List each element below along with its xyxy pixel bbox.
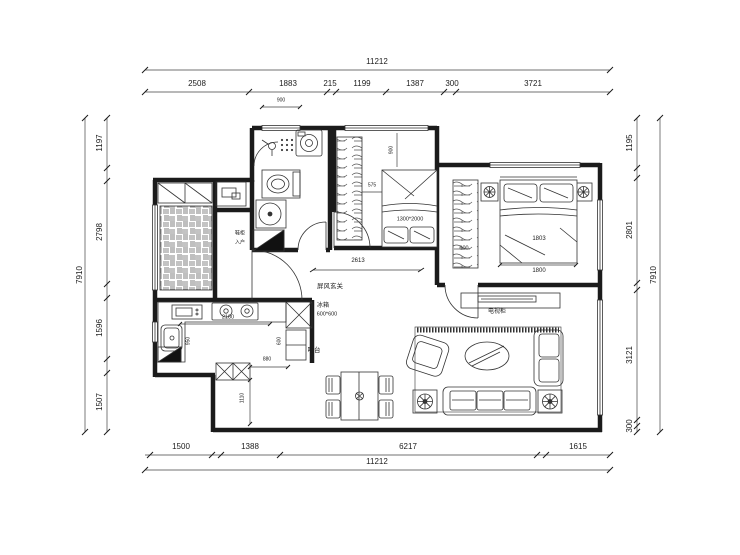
dim-fridge-depth: 600: [278, 337, 283, 345]
bathroom: [253, 130, 322, 251]
fridge-size-label: 600*600: [317, 312, 338, 318]
dim-top-total: 11212: [366, 58, 388, 66]
plant-table-left: [413, 390, 437, 413]
plant-table-right: [538, 390, 562, 413]
window-living-right: [598, 300, 603, 415]
entry-cabinet-black: [253, 230, 284, 251]
dim-bar-gap: 880: [263, 358, 271, 363]
dim-right-total: 7910: [650, 266, 658, 284]
dim-bed2-gap: 575: [368, 184, 376, 189]
dim-top-seg-4: 1387: [406, 80, 424, 88]
balcony-cabinet: [158, 183, 212, 203]
door-master: [445, 285, 478, 318]
master-bed-label: 1803: [532, 236, 545, 242]
wardrobe2: [337, 137, 362, 240]
tv-cabinet: [461, 293, 560, 308]
kitchen: [158, 302, 312, 380]
loveseat: [534, 330, 563, 386]
dim-bottom-seg-1: 1388: [241, 443, 259, 451]
desk: [216, 182, 246, 206]
dim-left-total: 7910: [76, 266, 84, 284]
dim-hall-width: 2613: [351, 258, 364, 264]
nightstand-left: [481, 183, 498, 201]
bar-label: 吧台: [308, 348, 321, 355]
dim-counter: 2180: [222, 315, 234, 321]
fridge-icon: [286, 302, 312, 328]
microwave-icon: [172, 305, 202, 319]
basin-icon: [256, 200, 286, 228]
dim-right-seg-3: 300: [626, 419, 634, 432]
door-arcs: [252, 142, 478, 318]
nightstand-right: [575, 183, 592, 201]
dim-top-seg-2: 215: [323, 80, 336, 88]
bed2: [382, 170, 437, 247]
balcony: [158, 182, 246, 290]
fridge-label: 冰箱: [317, 303, 329, 309]
screen-entry-label: 屏风玄关: [317, 284, 343, 291]
bed2-size-label: 1300*2000: [397, 217, 424, 223]
dim-right-seg-1: 2801: [626, 221, 634, 239]
shoe-cabinet-label: 鞋柜: [235, 232, 245, 237]
door-hall: [252, 250, 302, 300]
dim-bottom-seg-3: 1615: [569, 443, 587, 451]
dim-wardrobe: 600: [459, 246, 468, 252]
dim-top-seg-5: 300: [445, 80, 458, 88]
dim-top-seg-0: 2508: [188, 80, 206, 88]
stove-icon: [212, 303, 258, 320]
dim-counter-depth: 950: [187, 337, 192, 345]
balcony-floor-weave: [160, 206, 212, 290]
living-room: [405, 293, 563, 415]
dim-top-seg-3: 1199: [353, 80, 370, 88]
dim-top-seg-1: 1883: [279, 80, 297, 88]
window-kitchen-left: [153, 322, 158, 342]
master-bedroom: [453, 177, 592, 268]
armchair: [405, 333, 451, 378]
window-bath-top: [262, 126, 300, 131]
window-bedroom2-top: [345, 126, 428, 131]
dining-chairs: [326, 376, 393, 418]
toilet-icon: [262, 170, 300, 198]
entry-shoe-cabinet: [216, 363, 250, 380]
entry-label: 入户: [235, 241, 245, 246]
dining: [326, 372, 393, 420]
dim-left-seg-3: 1507: [96, 393, 104, 411]
floor-plan-canvas: 11212 2508 1883 215 1199 1387 300 3721 1…: [0, 0, 740, 555]
dim-bottom-total: 11212: [366, 458, 388, 466]
wardrobe-master: [453, 180, 478, 268]
dim-right-seg-2: 3121: [626, 346, 634, 364]
dim-entry-depth: 1110: [241, 393, 246, 403]
dim-master-bed-width: 1800: [532, 268, 545, 274]
dim-left-seg-1: 2798: [96, 223, 104, 241]
dim-bottom-seg-2: 6217: [399, 443, 417, 451]
door-shower: [254, 142, 278, 166]
washing-machine-icon: [296, 130, 322, 156]
bedroom2: [337, 137, 437, 247]
door-bath: [298, 222, 326, 250]
dim-top-seg-6: 3721: [524, 80, 542, 88]
dim-bed2-vert: 900: [390, 146, 395, 154]
window-balcony-left: [153, 205, 158, 290]
dim-bottom-seg-0: 1500: [172, 443, 190, 451]
dim-right-seg-0: 1195: [626, 134, 634, 151]
dim-bath-window: 900: [277, 99, 285, 104]
dim-left-seg-2: 1596: [96, 319, 104, 337]
window-master-top: [490, 163, 580, 168]
tv-cabinet-label: 电视柜: [488, 309, 506, 315]
sofa: [443, 387, 536, 415]
window-master-right: [598, 200, 603, 270]
master-bed: [500, 177, 577, 263]
bar-counter: [286, 330, 306, 360]
walls: [153, 126, 602, 432]
coffee-table: [465, 342, 509, 370]
dim-left-seg-0: 1197: [96, 134, 104, 151]
